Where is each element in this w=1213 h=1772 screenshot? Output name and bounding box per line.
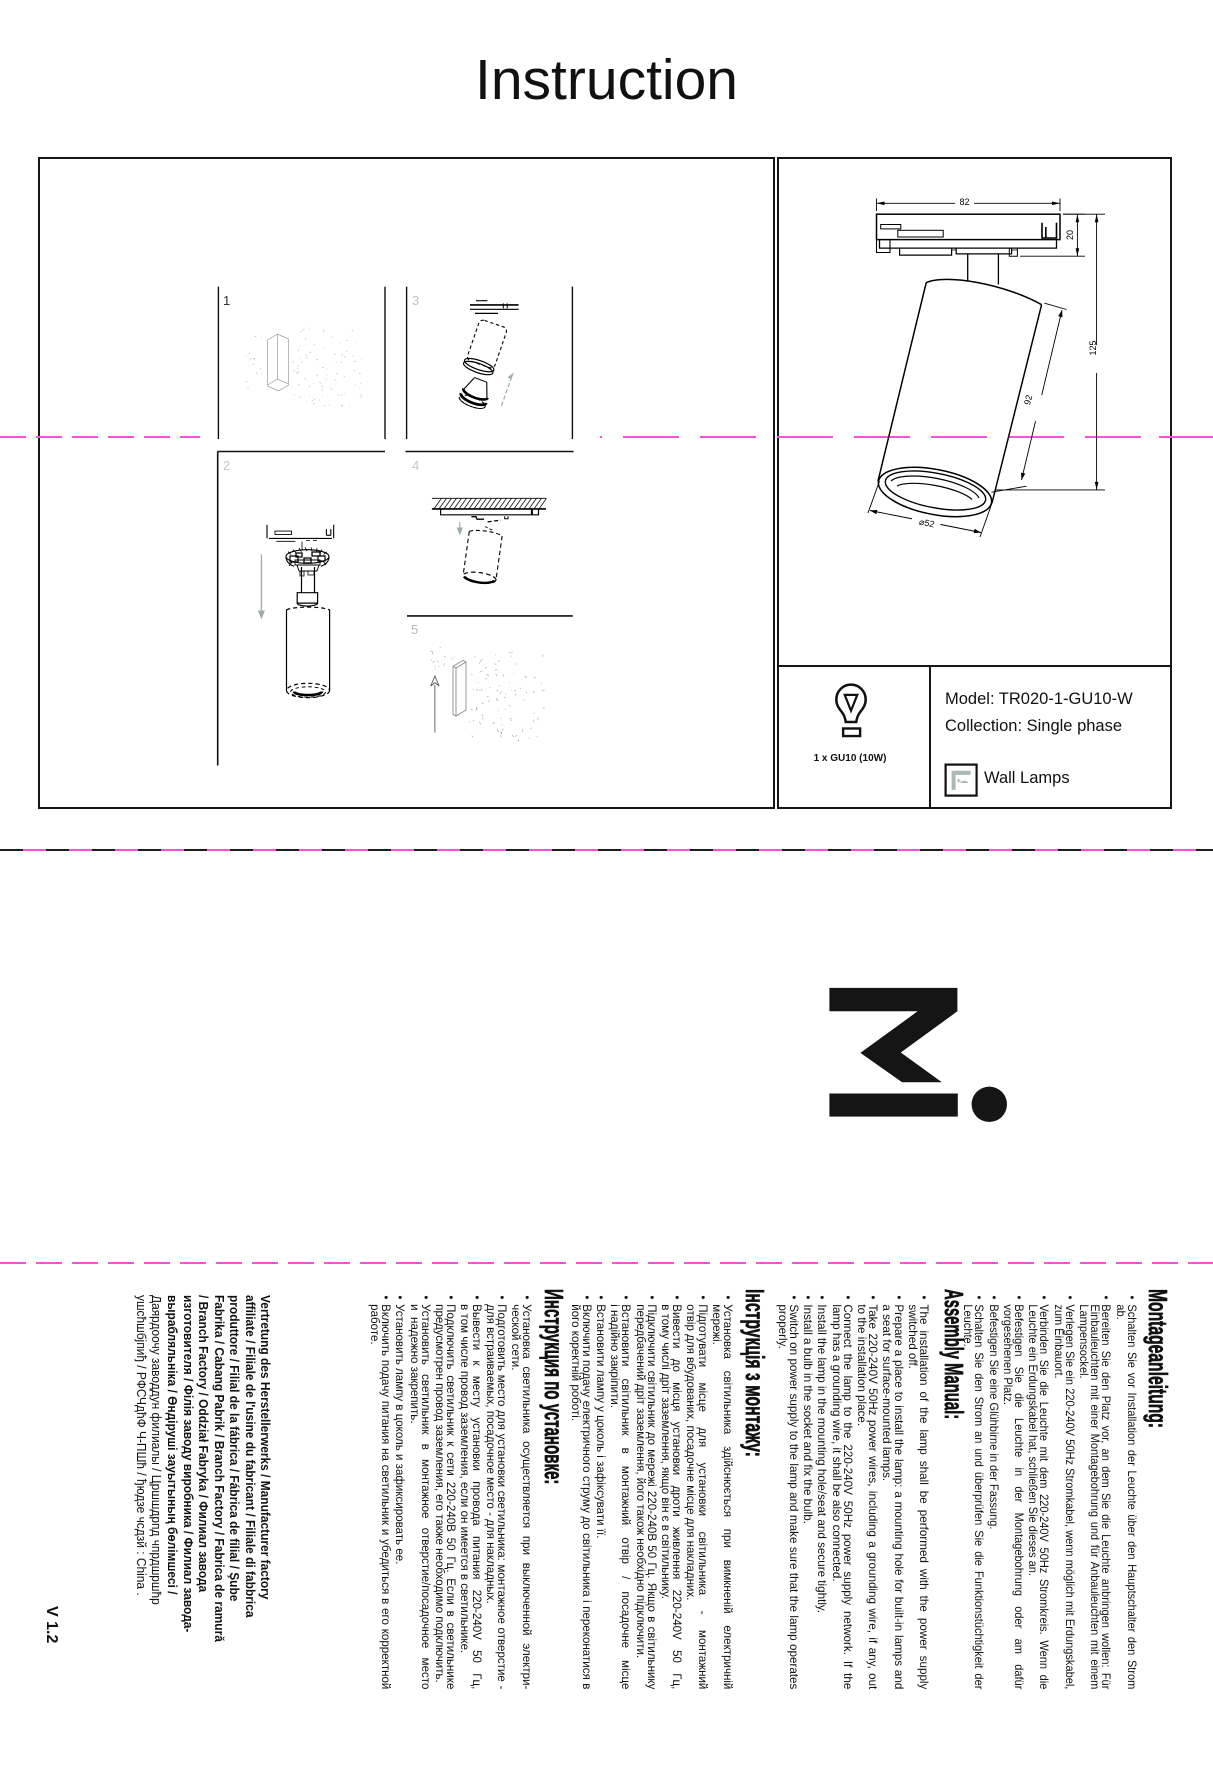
svg-text:125: 125 bbox=[1088, 340, 1098, 355]
svg-text:1: 1 bbox=[223, 293, 230, 308]
svg-text:⌀52: ⌀52 bbox=[918, 517, 935, 530]
svg-text:4: 4 bbox=[412, 458, 419, 473]
svg-text:82: 82 bbox=[959, 197, 969, 207]
svg-text:2: 2 bbox=[223, 458, 230, 473]
svg-text:3: 3 bbox=[412, 293, 419, 308]
svg-text:20: 20 bbox=[1065, 230, 1075, 240]
svg-text:5: 5 bbox=[411, 622, 418, 637]
